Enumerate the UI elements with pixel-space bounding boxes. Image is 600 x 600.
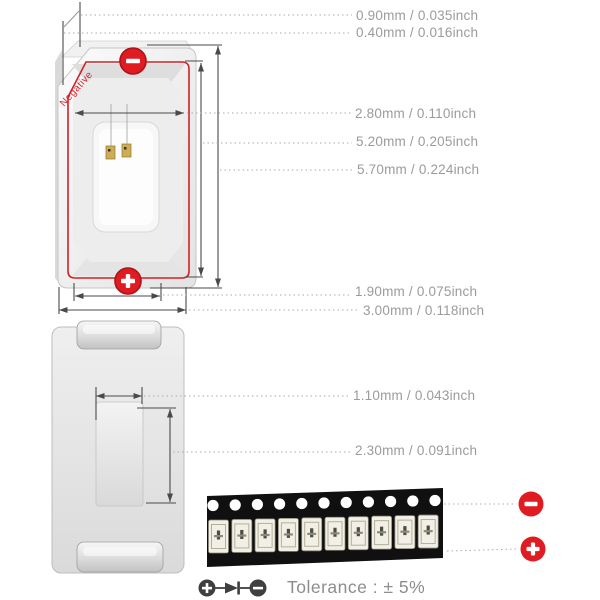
dimension-label-5-70mm: 5.70mm / 0.224inch <box>357 162 479 178</box>
tape-led-electrode-mark <box>400 531 409 533</box>
front-view: Negative <box>55 41 196 294</box>
dimension-label-5-20mm: 5.20mm / 0.205inch <box>356 134 478 150</box>
tape-sprocket-hole <box>318 497 329 508</box>
negative-badge <box>120 48 146 74</box>
dimension-label-2-80mm: 2.80mm / 0.110inch <box>355 106 476 122</box>
chip-contact <box>124 147 127 150</box>
led-chip <box>106 146 115 159</box>
tape-positive-badge <box>521 537 546 562</box>
dimension-label-0-90mm: 0.90mm / 0.035inch <box>356 8 478 24</box>
dimension-label-1-90mm: 1.90mm / 0.075inch <box>355 284 477 300</box>
tape-sprocket-hole <box>341 497 352 508</box>
spec-diagram-canvas: Negative <box>0 0 600 600</box>
perspective-edge <box>64 11 79 27</box>
back-view <box>52 321 184 573</box>
tape-sprocket-hole <box>363 496 374 507</box>
tape-led-electrode-mark <box>377 531 386 533</box>
tolerance-text: Tolerance : ± 5% <box>287 577 425 598</box>
thermal-pad <box>96 402 143 506</box>
tape-sprocket-hole <box>429 495 440 506</box>
tape-led-electrode-mark <box>307 533 316 535</box>
tape-led-electrode-mark <box>284 533 293 535</box>
diode-icon <box>225 583 238 594</box>
dimension-label-1-10mm: 1.10mm / 0.043inch <box>353 388 475 404</box>
tape-led-electrode-mark <box>237 534 246 536</box>
tape-led-electrode-mark <box>424 530 433 532</box>
dimension-label-0-40mm: 0.40mm / 0.016inch <box>356 25 478 41</box>
tape-sprocket-hole <box>407 495 418 506</box>
emitting-window-inner <box>99 129 153 225</box>
tape-negative-badge <box>519 492 544 517</box>
dimension-label-3-00mm: 3.00mm / 0.118inch <box>363 303 484 319</box>
led-spec-sheet: Negative <box>0 0 600 600</box>
tape-led-electrode-mark <box>331 532 340 534</box>
led-chip <box>122 144 131 157</box>
anode-pad-tab <box>77 542 163 572</box>
tape-led-electrode-mark <box>354 532 363 534</box>
dimension-label-2-30mm: 2.30mm / 0.091inch <box>355 443 477 459</box>
chip-contact <box>108 149 111 152</box>
tape-led-electrode-mark <box>214 535 223 537</box>
tape-sprocket-hole <box>230 499 241 510</box>
tape-sprocket-hole <box>207 500 218 511</box>
tape-led-electrode-mark <box>261 534 270 536</box>
tape-sprocket-hole <box>274 498 285 509</box>
tape-sprocket-hole <box>252 499 263 510</box>
polarity-legend <box>199 580 267 597</box>
tape-photo <box>207 488 546 567</box>
tape-sprocket-hole <box>296 498 307 509</box>
positive-badge <box>115 268 141 294</box>
tape-sprocket-hole <box>385 496 396 507</box>
leader-tape-positive <box>447 549 518 551</box>
